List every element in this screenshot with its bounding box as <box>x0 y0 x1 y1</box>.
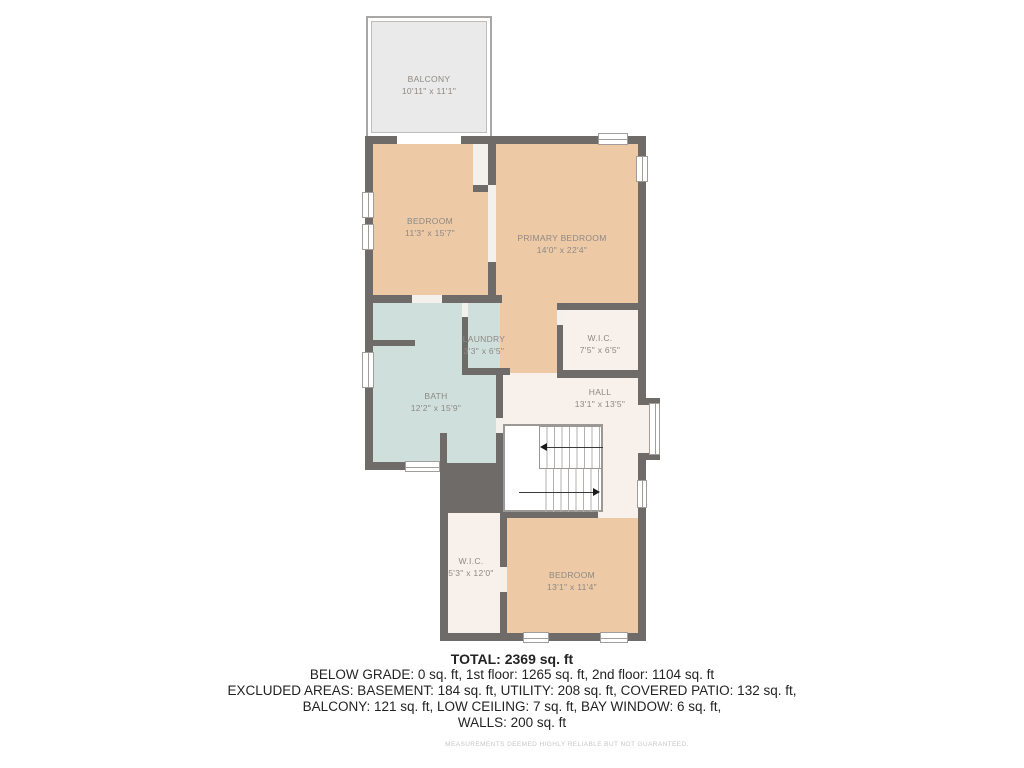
low-ceiling-area <box>440 463 496 513</box>
room-label-wic-upper: W.I.C. 7'5" x 6'5" <box>580 333 620 356</box>
closet-niche <box>473 141 489 185</box>
room-dims: 3'3" x 6'5" <box>463 346 506 358</box>
window <box>405 461 440 472</box>
room-dims: 5'3" x 12'0" <box>448 568 494 580</box>
room-dims: 13'1" x 13'5" <box>575 399 626 411</box>
stair-direction-line <box>545 447 603 448</box>
wall <box>440 433 447 463</box>
staircase <box>503 424 603 512</box>
window <box>600 632 628 643</box>
room-name: BEDROOM <box>547 570 597 582</box>
room-name: LAUNDRY <box>463 334 506 346</box>
door-opening <box>412 295 442 303</box>
room-name: HALL <box>575 387 626 399</box>
room-label-hall: HALL 13'1" x 13'5" <box>575 387 626 410</box>
door-opening <box>488 185 496 262</box>
wall <box>638 136 646 156</box>
wall <box>440 513 448 641</box>
summary-line: BELOW GRADE: 0 sq. ft, 1st floor: 1265 s… <box>0 667 1024 683</box>
wall <box>549 633 600 641</box>
door-opening <box>496 418 503 433</box>
room-label-bedroom-lower: BEDROOM 13'1" x 11'4" <box>547 570 597 593</box>
room-dims: 14'0" x 22'4" <box>517 245 606 257</box>
window <box>637 480 647 508</box>
stair-arrow-right-icon <box>593 488 600 496</box>
room-name: BEDROOM <box>405 216 455 228</box>
room-dims: 11'3" x 15'7" <box>405 228 455 240</box>
room-name: BATH <box>411 391 462 403</box>
wall <box>496 433 503 513</box>
stair-direction-line <box>519 492 595 493</box>
window <box>523 632 549 643</box>
door-opening <box>598 510 638 518</box>
room-primary-bedroom-passage <box>500 300 560 373</box>
stair-arrow-left-icon <box>540 443 547 451</box>
window <box>362 224 374 250</box>
window <box>362 352 374 388</box>
wall <box>488 141 496 185</box>
room-label-bath: BATH 12'2" x 15'9" <box>411 391 462 414</box>
wall <box>557 370 646 378</box>
room-dims: 12'2" x 15'9" <box>411 403 462 415</box>
wall <box>370 340 415 346</box>
wall <box>638 508 646 641</box>
wall <box>638 182 646 398</box>
door-opening <box>462 303 468 317</box>
room-primary-bedroom <box>496 143 638 303</box>
room-dims: 13'1" x 11'4" <box>547 582 597 594</box>
room-name: W.I.C. <box>448 556 494 568</box>
wall <box>440 633 523 641</box>
wall <box>557 303 646 310</box>
room-label-balcony: BALCONY 10'11" x 11'1" <box>402 74 456 97</box>
wall <box>365 462 405 470</box>
window <box>362 192 374 218</box>
summary-line: BALCONY: 121 sq. ft, LOW CEILING: 7 sq. … <box>0 699 1024 715</box>
wall <box>496 373 503 418</box>
room-label-primary-bedroom: PRIMARY BEDROOM 14'0" x 22'4" <box>517 233 606 256</box>
room-label-wic-lower: W.I.C. 5'3" x 12'0" <box>448 556 494 579</box>
summary-line: WALLS: 200 sq. ft <box>0 715 1024 731</box>
room-dims: 7'5" x 6'5" <box>580 345 620 357</box>
floor-plan-page: BALCONY 10'11" x 11'1" BEDROOM 11'3" x 1… <box>0 0 1024 768</box>
wall <box>628 633 646 641</box>
door-opening <box>500 567 507 592</box>
wall <box>365 136 373 192</box>
room-label-bedroom-upper: BEDROOM 11'3" x 15'7" <box>405 216 455 239</box>
wall <box>365 388 373 470</box>
room-label-laundry: LAUNDRY 3'3" x 6'5" <box>463 334 506 357</box>
room-name: BALCONY <box>402 74 456 86</box>
wall <box>442 295 502 303</box>
wall <box>365 295 412 303</box>
bay-window <box>649 403 660 455</box>
wall <box>557 325 563 373</box>
window <box>636 156 648 182</box>
wall <box>500 513 507 567</box>
wall <box>500 592 507 641</box>
balcony-door-opening <box>397 136 461 144</box>
room-dims: 10'11" x 11'1" <box>402 86 456 98</box>
window <box>598 133 628 145</box>
area-summary: TOTAL: 2369 sq. ft BELOW GRADE: 0 sq. ft… <box>0 651 1024 731</box>
door-opening <box>557 310 563 325</box>
disclaimer-text: MEASUREMENTS DEEMED HIGHLY RELIABLE BUT … <box>0 741 1024 748</box>
total-area: TOTAL: 2369 sq. ft <box>0 651 1024 667</box>
room-name: W.I.C. <box>580 333 620 345</box>
wall <box>638 460 646 480</box>
room-name: PRIMARY BEDROOM <box>517 233 606 245</box>
summary-line: EXCLUDED AREAS: BASEMENT: 184 sq. ft, UT… <box>0 683 1024 699</box>
